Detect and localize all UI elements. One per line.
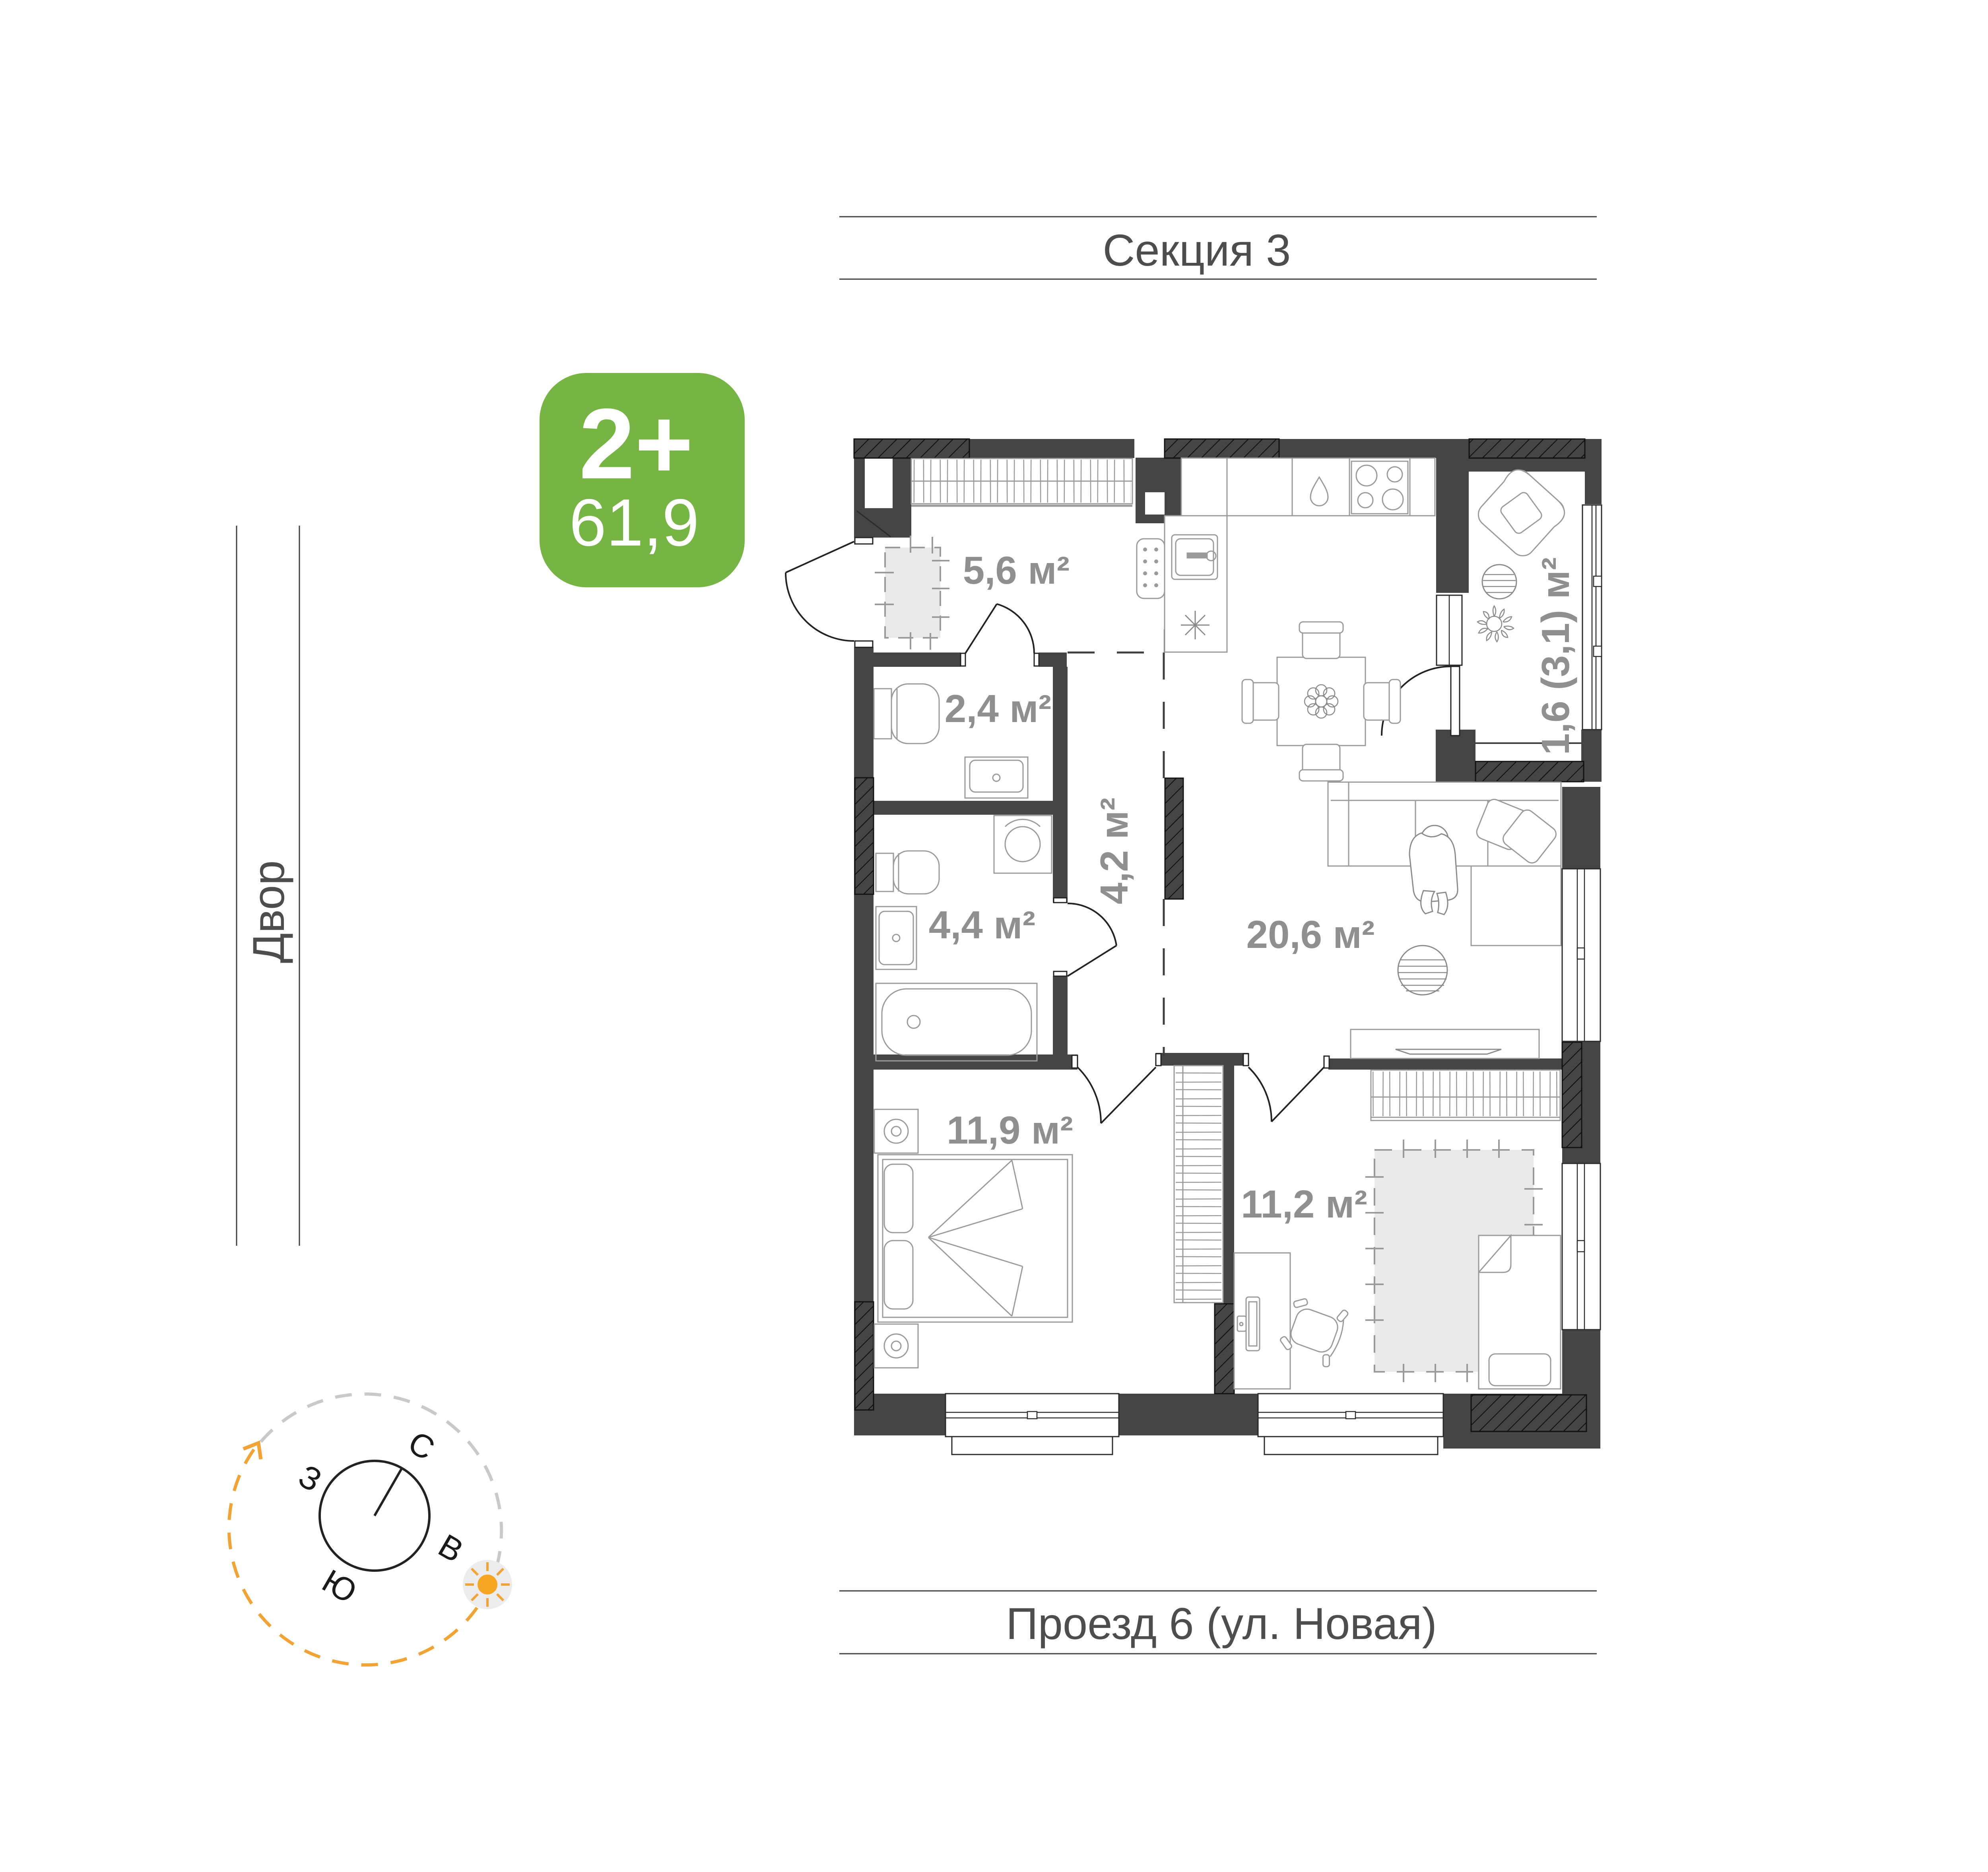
svg-text:61,9: 61,9 (569, 485, 699, 560)
svg-text:Секция 3: Секция 3 (1103, 225, 1291, 275)
svg-text:2,4 м²: 2,4 м² (945, 687, 1052, 730)
svg-text:11,9 м²: 11,9 м² (947, 1108, 1073, 1152)
svg-text:1,6 (3,1) м²: 1,6 (3,1) м² (1534, 557, 1577, 755)
svg-text:20,6 м²: 20,6 м² (1246, 913, 1375, 956)
svg-text:11,2 м²: 11,2 м² (1241, 1182, 1367, 1226)
svg-text:Двор: Двор (244, 860, 293, 963)
svg-text:4,2 м²: 4,2 м² (1092, 798, 1136, 905)
svg-text:4,4 м²: 4,4 м² (929, 903, 1036, 947)
svg-text:5,6 м²: 5,6 м² (963, 548, 1070, 592)
svg-text:Проезд 6 (ул. Новая): Проезд 6 (ул. Новая) (1006, 1599, 1437, 1649)
svg-text:2+: 2+ (579, 388, 693, 500)
